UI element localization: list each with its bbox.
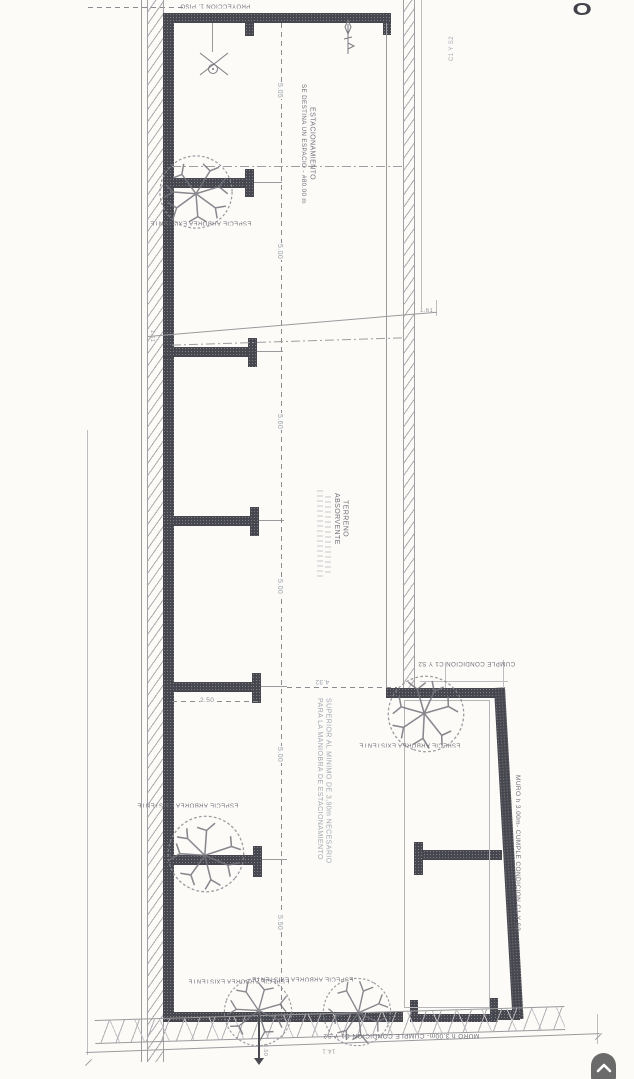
projection-label: PROYECCION 1. PISO [180,1,250,9]
dim-label: 5.60 [274,413,283,430]
dim-label: 5.50 [274,914,283,931]
existing-tree-icon [152,148,240,236]
level-line [148,312,437,337]
stall-wall-cap [250,507,259,536]
dim-label-total: 14.1 [322,1046,335,1054]
stall-wall [163,347,248,357]
symbol-leader-line [212,23,213,52]
setback-tick [436,300,437,316]
left-dim-line [87,430,88,1055]
stall-wall-cap [252,673,261,703]
existing-tree-icon [301,956,413,1068]
scroll-to-top-button[interactable] [591,1053,616,1079]
dimension-chain-line [281,23,282,1014]
right-dim-line [597,1014,598,1044]
tree-arrow-head [254,1058,264,1065]
wall-note-right: MURO h 3.00m- CUMPLE CONDICION C1 Y S2 [513,775,521,931]
projection-dashed-line [88,7,186,8]
dim-tick [85,1059,92,1066]
stall-wall-line [262,859,287,860]
faint-text-noise [317,490,323,578]
maneuver-note: SUPERIOR AL MINIMO DE 3,90m NECESARIO PA… [314,698,332,863]
stall-wall [163,516,250,526]
north-arrow-icon [337,18,359,58]
dim-label-setback: 1.61 [420,308,433,316]
parking-note: ESTACIONAMIENTO SE DESTINA UN ESPACIO - … [299,76,316,212]
dim-label-maneuver: 4.32 [315,676,329,686]
stall-wall-line [254,182,282,183]
condition-note: CUMPLE CONDICION C1 Y S2 [418,659,515,667]
dim-label: 5.00 [274,578,283,595]
stall-wall-line [257,351,283,352]
dim-label: 5.00 [274,243,283,260]
maneuver-dim-line [287,687,397,688]
top-wall-corner [383,23,391,35]
dim-label: 5.00 [274,746,283,763]
stall-wall-line [261,686,287,687]
tree-removal-icon [198,50,230,78]
bay-dim-line [172,701,260,702]
setback-line [421,0,422,308]
strip-edge-line [386,23,387,688]
centerline [172,337,402,345]
chevron-up-icon [595,1063,613,1073]
property-line-left [141,0,142,1062]
faint-text-noise [325,496,331,574]
title-letter-fragment: O [573,3,592,17]
terrain-note: TERRENO ABSORVENTE [331,479,349,559]
site-plan-scan: PROYECCION 1. PISO [0,0,634,1079]
boundary-hatch-right [403,0,415,688]
top-wall-stub [245,23,254,36]
wall-note-fragment: C1 Y S2 [449,5,457,61]
dim-label: 5.05 [274,82,283,99]
dim-label-setback-left: 1.61 [148,330,155,342]
stall-wall [163,682,252,692]
stall-wall-cap [245,169,254,197]
dim-label-bay: 2.50 [200,696,214,706]
